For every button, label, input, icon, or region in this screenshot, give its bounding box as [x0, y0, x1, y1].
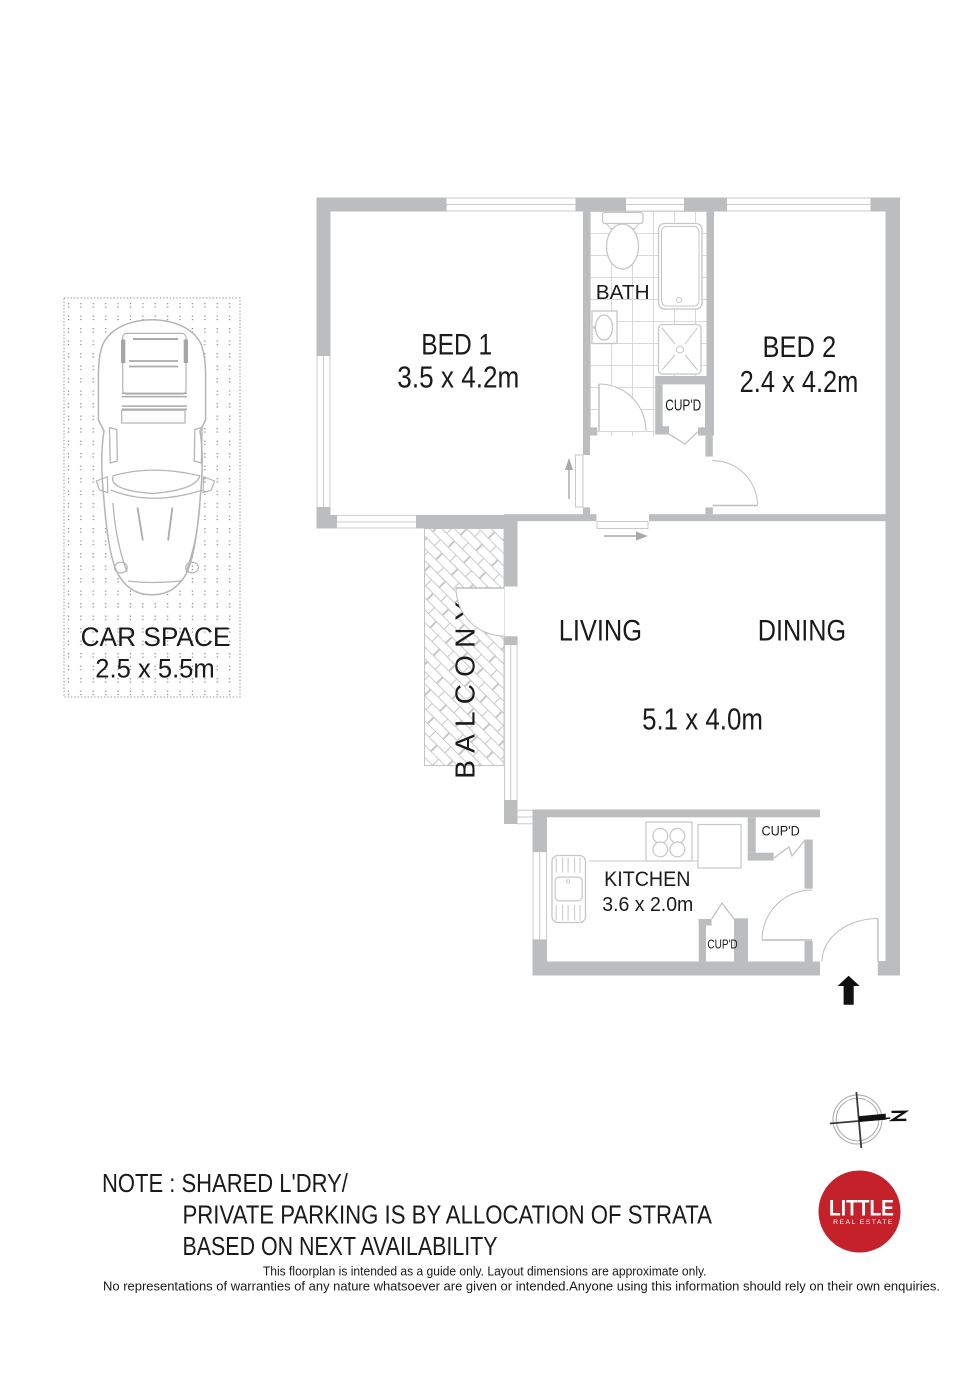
- svg-text:CAR SPACE: CAR SPACE: [81, 622, 231, 652]
- svg-text:BED 1: BED 1: [421, 329, 492, 362]
- svg-text:REAL ESTATE: REAL ESTATE: [833, 1219, 893, 1226]
- svg-text:CUP'D: CUP'D: [761, 823, 799, 838]
- svg-text:PRIVATE PARKING IS BY ALLOCATI: PRIVATE PARKING IS BY ALLOCATION OF STRA…: [183, 1200, 713, 1230]
- svg-text:2.4 x 4.2m: 2.4 x 4.2m: [740, 365, 859, 399]
- svg-text:BASED ON NEXT AVAILABILITY: BASED ON NEXT AVAILABILITY: [183, 1231, 498, 1261]
- svg-text:NOTE : SHARED L'DRY/: NOTE : SHARED L'DRY/: [102, 1168, 349, 1198]
- svg-text:KITCHEN: KITCHEN: [604, 866, 690, 891]
- svg-text:BED 2: BED 2: [763, 331, 837, 364]
- svg-text:This floorplan is intended as: This floorplan is intended as a guide on…: [263, 1263, 707, 1278]
- svg-text:3.5 x 4.2m: 3.5 x 4.2m: [397, 360, 519, 394]
- svg-text:2.5 x 5.5m: 2.5 x 5.5m: [95, 654, 214, 684]
- svg-text:CUP'D: CUP'D: [665, 398, 701, 415]
- svg-text:CUP'D: CUP'D: [707, 937, 737, 952]
- svg-text:No representations of warranti: No representations of warranties of any …: [103, 1278, 940, 1293]
- svg-text:DINING: DINING: [758, 615, 846, 648]
- svg-text:BATH: BATH: [596, 281, 650, 304]
- svg-text:LITTLE: LITTLE: [829, 1196, 894, 1221]
- svg-text:BALCONY: BALCONY: [449, 601, 480, 778]
- svg-text:5.1 x 4.0m: 5.1 x 4.0m: [642, 703, 763, 737]
- svg-text:3.6 x 2.0m: 3.6 x 2.0m: [602, 893, 693, 916]
- svg-text:LIVING: LIVING: [559, 615, 642, 648]
